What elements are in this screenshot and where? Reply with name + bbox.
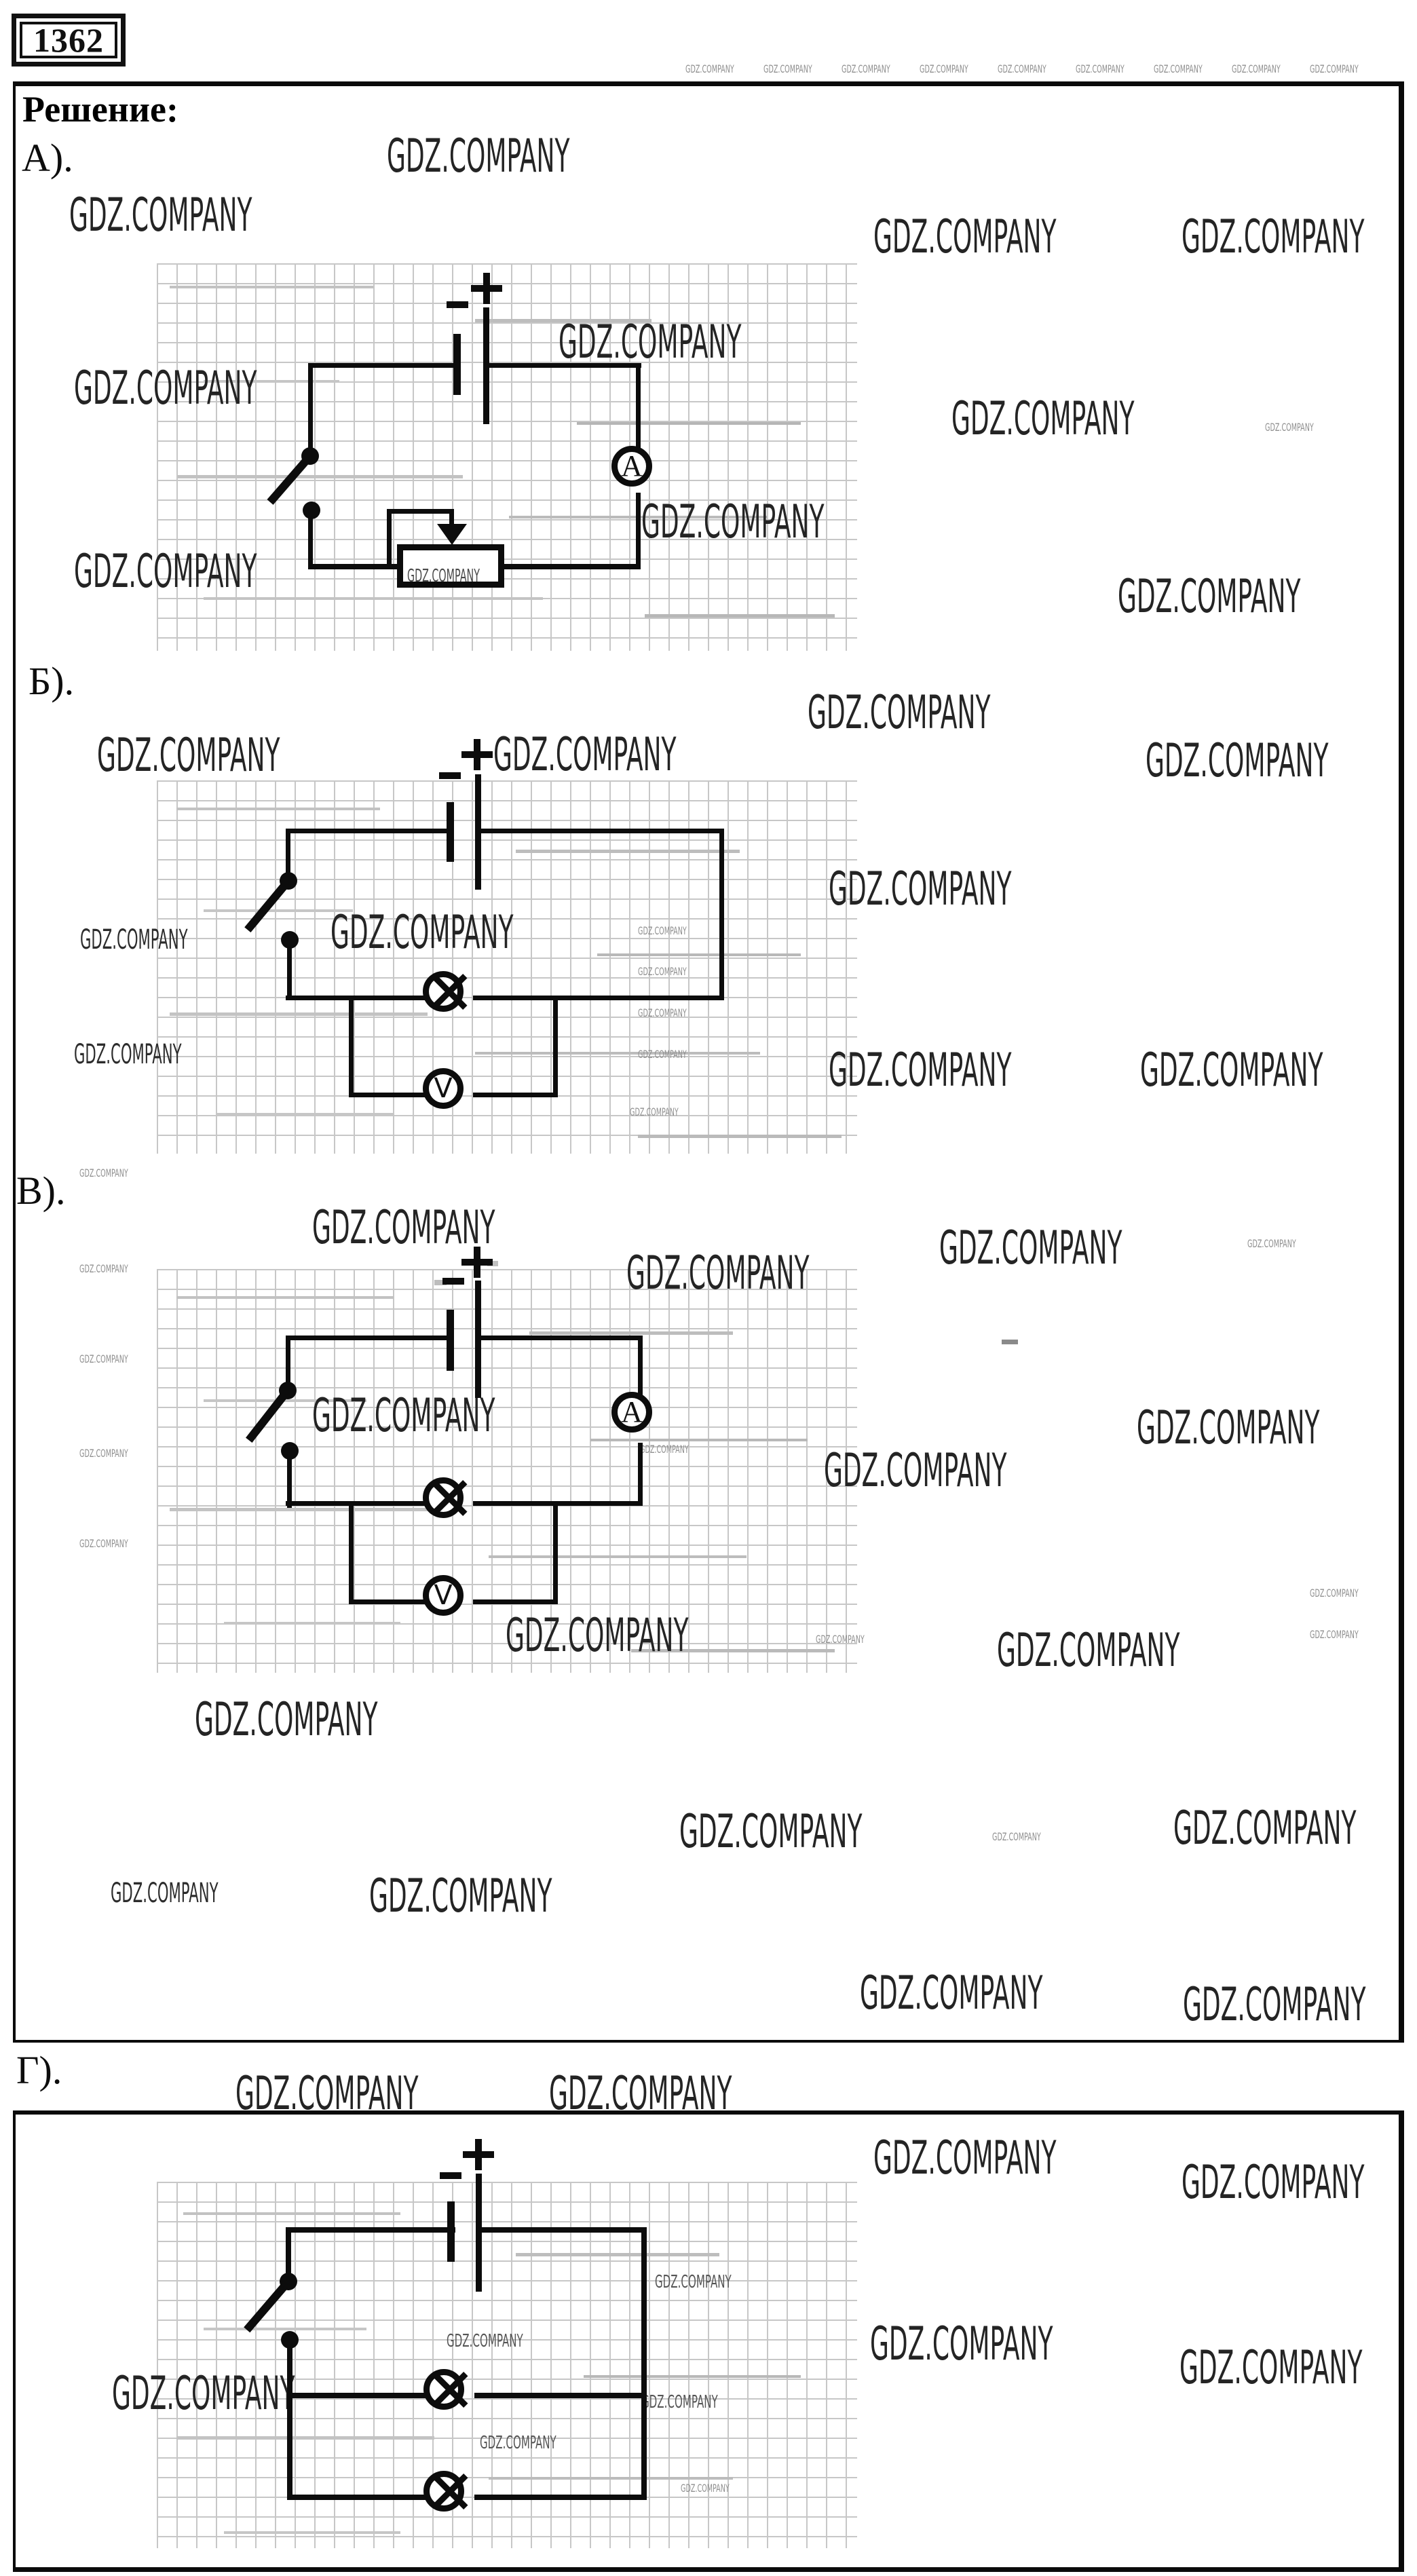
wire-segment (719, 829, 724, 1000)
voltmeter-label: V (434, 1075, 452, 1102)
watermark: GDZ.COMPANY (549, 2071, 732, 2117)
scanned-solution-page: 1362 Решение: А). Б). В). Г). GDZ.COMPAN… (0, 0, 1417, 2576)
watermark: GDZ.COMPANY (79, 1264, 128, 1274)
watermark: GDZ.COMPANY (1182, 214, 1365, 261)
watermark: GDZ.COMPANY (74, 1041, 182, 1068)
watermark: GDZ.COMPANY (763, 64, 812, 75)
section-label-a: А). (22, 138, 73, 178)
switch-contact-dot (280, 2273, 297, 2290)
watermark: GDZ.COMPANY (1154, 64, 1203, 75)
solution-heading: Решение: (22, 90, 178, 130)
watermark: GDZ.COMPANY (112, 2371, 295, 2417)
wire-segment (287, 1456, 292, 1508)
scan-artifact (577, 422, 801, 425)
watermark: GDZ.COMPANY (640, 1444, 689, 1455)
minus-sign-icon (439, 772, 461, 779)
battery-short-plate-icon (447, 1310, 454, 1371)
scan-artifact (183, 2212, 400, 2215)
watermark: GDZ.COMPANY (79, 1448, 128, 1459)
lamp-icon (423, 971, 464, 1012)
plus-sign-icon (483, 273, 490, 304)
watermark: GDZ.COMPANY (387, 134, 570, 180)
plus-sign-icon (474, 1247, 480, 1278)
lamp-icon (423, 1477, 464, 1518)
wire-segment (473, 996, 724, 1000)
watermark: GDZ.COMPANY (1179, 2345, 1363, 2391)
watermark: GDZ.COMPANY (1310, 64, 1359, 75)
watermark: GDZ.COMPANY (369, 1874, 552, 1920)
watermark: GDZ.COMPANY (74, 549, 257, 595)
battery-short-plate-icon (453, 334, 461, 395)
watermark: GDZ.COMPANY (1137, 1405, 1320, 1452)
ammeter-icon: A (611, 1392, 652, 1433)
scan-artifact (638, 1135, 842, 1138)
watermark: GDZ.COMPANY (1232, 64, 1281, 75)
plus-sign-icon (475, 2139, 482, 2170)
switch-contact-dot (281, 1442, 299, 1460)
section-label-g: Г). (16, 2051, 62, 2090)
wire-segment (349, 1093, 426, 1097)
scan-artifact (645, 614, 835, 618)
scan-artifact (475, 1052, 760, 1055)
wire-segment (500, 564, 641, 569)
rheostat-slider-wire (387, 509, 454, 514)
voltmeter-label: V (434, 1582, 452, 1609)
scan-artifact (529, 1331, 733, 1335)
grid-paper-b (157, 780, 857, 1154)
minus-sign-icon (440, 2172, 461, 2179)
watermark: GDZ.COMPANY (1076, 64, 1125, 75)
watermark: GDZ.COMPANY (312, 1393, 495, 1439)
problem-number-badge: 1362 (12, 14, 126, 67)
wire-segment (553, 996, 558, 1097)
scan-artifact (204, 2328, 366, 2330)
watermark: GDZ.COMPANY (829, 1048, 1012, 1094)
wire-segment (479, 1336, 643, 1340)
voltmeter-icon: V (423, 1575, 464, 1616)
watermark: GDZ.COMPANY (829, 867, 1012, 913)
plus-sign-icon (474, 739, 480, 770)
watermark: GDZ.COMPANY (842, 64, 890, 75)
wire-segment (473, 1599, 558, 1604)
minus-sign-icon (447, 301, 468, 308)
wire-segment (553, 1501, 558, 1604)
wire-segment (481, 2227, 647, 2233)
wire-segment (474, 2393, 647, 2398)
wire-segment (286, 996, 426, 1000)
watermark: GDZ.COMPANY (860, 1971, 1043, 2017)
watermark: GDZ.COMPANY (655, 2273, 732, 2291)
wire-segment (286, 1336, 290, 1386)
wire-segment (287, 2393, 426, 2398)
watermark: GDZ.COMPANY (506, 1613, 689, 1659)
scan-artifact (597, 953, 801, 956)
problem-number: 1362 (33, 23, 104, 57)
watermark: GDZ.COMPANY (79, 1354, 128, 1365)
watermark: GDZ.COMPANY (312, 1205, 495, 1251)
watermark: GDZ.COMPANY (493, 732, 677, 778)
watermark: GDZ.COMPANY (79, 1538, 128, 1549)
watermark: GDZ.COMPANY (630, 1107, 679, 1118)
watermark: GDZ.COMPANY (69, 193, 252, 239)
wire-segment (286, 829, 454, 833)
watermark: GDZ.COMPANY (939, 1226, 1122, 1272)
switch-contact-dot (303, 501, 320, 519)
grid-paper-g (157, 2182, 857, 2548)
watermark: GDZ.COMPANY (330, 910, 514, 956)
watermark: GDZ.COMPANY (1140, 1048, 1323, 1094)
watermark: GDZ.COMPANY (1247, 1238, 1296, 1249)
wire-segment (308, 363, 313, 456)
ammeter-label: A (621, 1397, 643, 1427)
scan-artifact (489, 2477, 733, 2480)
wire-segment (349, 996, 354, 1097)
scan-artifact (176, 2436, 434, 2440)
watermark: GDZ.COMPANY (824, 1448, 1007, 1494)
watermark: GDZ.COMPANY (679, 1809, 863, 1855)
watermark: GDZ.COMPANY (638, 926, 687, 936)
watermark: GDZ.COMPANY (951, 396, 1135, 442)
watermark: GDZ.COMPANY (195, 1697, 378, 1743)
wire-segment (474, 2495, 647, 2500)
watermark: GDZ.COMPANY (626, 1251, 810, 1297)
watermark: GDZ.COMPANY (80, 926, 188, 953)
watermark: GDZ.COMPANY (681, 2483, 730, 2494)
wire-segment (310, 363, 461, 368)
watermark: GDZ.COMPANY (1183, 1982, 1366, 2028)
watermark: GDZ.COMPANY (808, 690, 991, 736)
battery-long-plate-icon (476, 2174, 482, 2292)
watermark: GDZ.COMPANY (638, 1049, 687, 1060)
watermark: GDZ.COMPANY (79, 1168, 128, 1179)
watermark: GDZ.COMPANY (235, 2071, 419, 2117)
wire-segment (308, 514, 313, 569)
watermark: GDZ.COMPANY (1310, 1629, 1359, 1640)
rheostat-slider-wire (387, 511, 392, 567)
watermark: GDZ.COMPANY (559, 320, 742, 366)
watermark: GDZ.COMPANY (685, 64, 734, 75)
watermark: GDZ.COMPANY (480, 2434, 556, 2452)
wire-segment (636, 493, 641, 569)
scan-artifact (217, 1113, 394, 1116)
wire-segment (286, 2227, 455, 2233)
wire-segment (473, 1093, 558, 1097)
wire-segment (287, 946, 292, 999)
scan-artifact (584, 2375, 801, 2378)
scan-artifact (224, 2531, 400, 2534)
watermark: GDZ.COMPANY (992, 1832, 1041, 1842)
scan-artifact (170, 1012, 428, 1016)
ammeter-icon: A (611, 446, 652, 487)
scan-artifact (170, 286, 373, 288)
wire-segment (286, 2227, 291, 2277)
watermark: GDZ.COMPANY (641, 499, 825, 546)
watermark: GDZ.COMPANY (74, 366, 257, 412)
watermark: GDZ.COMPANY (997, 1628, 1180, 1674)
section-label-v: В). (16, 1171, 66, 1211)
wire-segment (286, 829, 290, 877)
battery-short-plate-icon (447, 802, 454, 862)
watermark: GDZ.COMPANY (97, 733, 280, 779)
switch-contact-dot (279, 1382, 297, 1399)
watermark: GDZ.COMPANY (638, 966, 687, 977)
watermark: GDZ.COMPANY (638, 1008, 687, 1019)
switch-contact-dot (281, 2331, 299, 2349)
watermark: GDZ.COMPANY (920, 64, 968, 75)
scan-artifact (178, 475, 463, 478)
watermark: GDZ.COMPANY (998, 64, 1046, 75)
watermark: GDZ.COMPANY (641, 2393, 718, 2411)
wire-segment (473, 1501, 643, 1506)
wire-segment (286, 1336, 454, 1340)
switch-contact-dot (301, 447, 319, 465)
watermark: GDZ.COMPANY (1173, 1806, 1357, 1852)
scan-artifact (1002, 1340, 1018, 1344)
watermark: GDZ.COMPANY (873, 214, 1057, 261)
scan-artifact (176, 808, 380, 810)
wire-segment (636, 363, 641, 451)
scan-artifact (224, 1622, 400, 1625)
lamp-icon (423, 2369, 464, 2410)
scan-artifact (516, 2253, 719, 2256)
battery-long-plate-icon (475, 1281, 481, 1398)
wire-segment (286, 1501, 426, 1506)
battery-long-plate-icon (483, 307, 489, 424)
switch-contact-dot (281, 931, 299, 949)
wire-segment (479, 829, 724, 833)
wire-segment (287, 2495, 426, 2500)
watermark: GDZ.COMPANY (1146, 738, 1329, 784)
rheostat-watermark: GDZ.COMPANY (407, 567, 480, 585)
watermark: GDZ.COMPANY (1310, 1588, 1359, 1599)
watermark: GDZ.COMPANY (870, 2322, 1053, 2368)
watermark: GDZ.COMPANY (873, 2136, 1057, 2182)
scan-artifact (170, 1508, 441, 1511)
section-label-b: Б). (29, 662, 74, 701)
scan-artifact (590, 1439, 808, 1441)
battery-long-plate-icon (475, 774, 481, 890)
watermark: GDZ.COMPANY (816, 1634, 865, 1645)
scan-artifact (176, 1296, 394, 1299)
ammeter-label: A (621, 451, 643, 481)
voltmeter-icon: V (423, 1068, 464, 1109)
minus-sign-icon (442, 1278, 464, 1285)
watermark: GDZ.COMPANY (111, 1880, 219, 1907)
watermark: GDZ.COMPANY (447, 2332, 523, 2350)
wire-segment (641, 2227, 647, 2500)
wire-segment (287, 2347, 292, 2500)
battery-short-plate-icon (447, 2201, 455, 2262)
wire-segment (488, 363, 641, 368)
wire-segment (638, 1336, 643, 1395)
watermark: GDZ.COMPANY (1118, 574, 1301, 620)
scan-artifact (516, 850, 740, 853)
lamp-icon (423, 2471, 464, 2512)
wire-segment (349, 1501, 354, 1604)
wire-segment (638, 1443, 643, 1506)
wire-segment (349, 1599, 426, 1604)
switch-contact-dot (280, 872, 297, 890)
scan-artifact (489, 1555, 747, 1558)
watermark: GDZ.COMPANY (1182, 2160, 1365, 2206)
problem-number-inner-frame: 1362 (20, 22, 117, 58)
watermark: GDZ.COMPANY (1265, 422, 1314, 433)
